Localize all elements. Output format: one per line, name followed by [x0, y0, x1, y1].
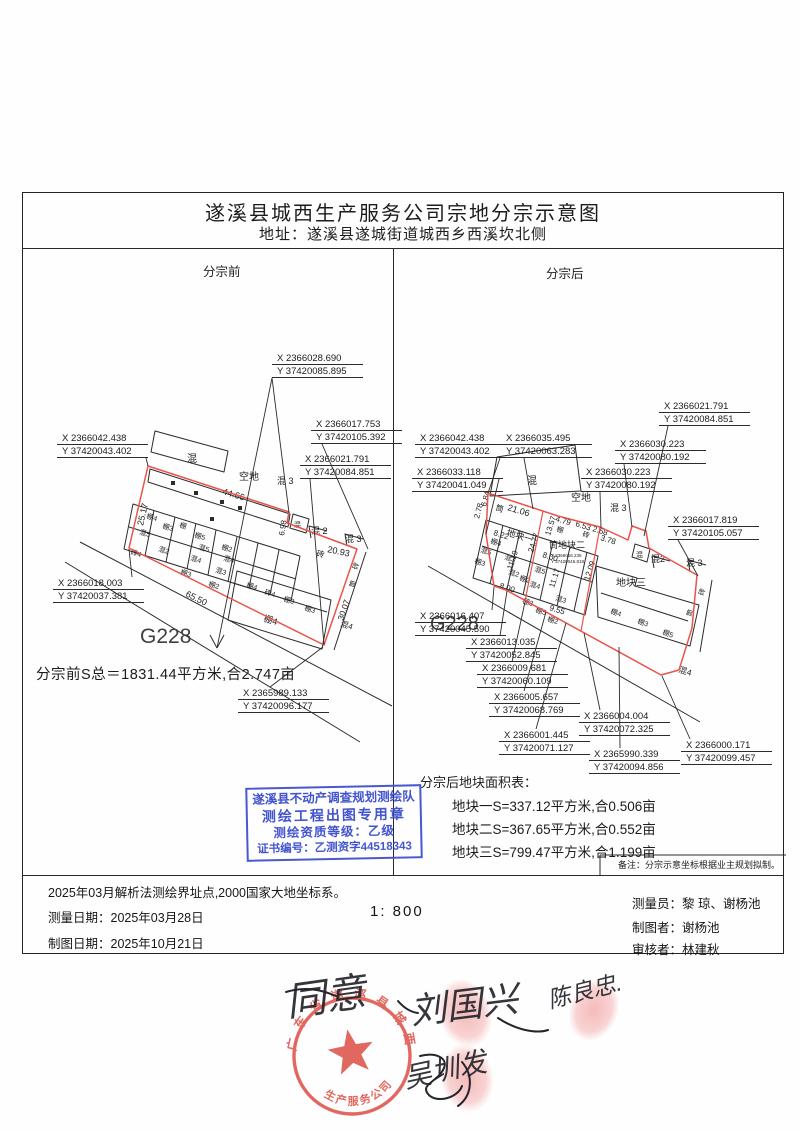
diagram-label: 混 3	[345, 534, 362, 544]
diagram-label: 棚3	[282, 594, 295, 606]
diagram-label: 65.50	[184, 589, 209, 608]
signature-area: 广东省遂溪县城西 生产服务公司 同意 刘国兴 陈良忠. 吴圳发	[0, 950, 800, 1131]
document-title: 遂溪县城西生产服务公司宗地分宗示意图	[22, 197, 784, 226]
survey-method: 2025年03月解析法测绘界址点,2000国家大地坐标系。	[48, 882, 346, 901]
diagram-line	[428, 566, 700, 722]
diagram-line	[129, 527, 296, 579]
diagram-label: 棚5	[193, 530, 206, 542]
leader-line	[310, 479, 324, 645]
building-outline	[228, 571, 331, 649]
coordinate-x-value: X 2366000.171	[686, 740, 750, 751]
coordinate-y-value: Y 37420080.192	[620, 452, 690, 463]
leader-line	[488, 458, 500, 493]
building-outline	[151, 431, 228, 472]
diagram-label: 地块三	[616, 576, 646, 589]
diagram-label: 混2	[157, 544, 170, 556]
coordinate-y-value: Y 37420063.283	[506, 446, 576, 457]
diagram-line	[601, 593, 688, 621]
document-address: 地址：遂溪县遂城街道城西乡西溪坎北侧	[22, 223, 784, 244]
diagram-label: 筒	[494, 502, 505, 514]
coordinate-x-value: X 2366004.004	[584, 711, 648, 722]
area-table-title: 分宗后地块面积表：	[420, 772, 537, 791]
leader-line	[600, 492, 601, 528]
coordinate-y-value: Y 37420084.851	[305, 467, 375, 478]
area-table-row: 地块一S=337.12平方米,合0.506亩	[452, 795, 656, 815]
coordinate-x-value: X 2366009.681	[482, 663, 546, 674]
surveyor-stamp: 遂溪县不动产调查规划测绘队 测绘工程出图专用章 测绘资质等级：乙级 证书编号：乙…	[245, 784, 423, 861]
diagram-label: 13.57	[543, 514, 558, 536]
leader-line	[272, 378, 289, 513]
coordinate-y-value: Y 37420071.127	[504, 743, 574, 754]
diagram-label: 棚4	[609, 606, 622, 618]
drafter-name: 制图者：谢杨池	[632, 917, 720, 936]
diagram-label: 21.06	[506, 502, 530, 518]
diagram-label: 棚3	[303, 603, 316, 615]
leader-line	[146, 458, 148, 466]
area-summary-before: 分宗前S总＝1831.44平方米,合2.747亩	[36, 663, 295, 684]
diagram-label: 2.78	[472, 502, 485, 520]
map-scale: 1: 800	[370, 903, 424, 920]
coordinate-y-value: Y 37420094.856	[594, 762, 664, 773]
diagram-label: 11.17	[547, 567, 562, 589]
diagram-label: 砖	[696, 587, 707, 597]
coordinate-y-value: Y 37420084.851	[664, 414, 734, 425]
diagram-label: 混	[187, 453, 197, 465]
coordinate-y-value: Y 37420099.457	[686, 753, 756, 764]
seal-star	[325, 1025, 377, 1076]
diagram-label: 混 3	[610, 503, 627, 513]
area-table-row: 地块二S=367.65平方米,合0.552亩	[452, 818, 656, 838]
coordinate-x-value: X 2366042.438	[62, 433, 126, 444]
diagram-label: 混4	[528, 579, 541, 591]
pillar-square	[171, 481, 175, 485]
coordinate-y-value: Y 37420080.192	[586, 480, 656, 491]
coordinate-x-value: X 2366042.438	[420, 433, 484, 444]
coordinate-y-value: Y 37420037.381	[58, 591, 128, 602]
diagram-label: 棚4	[262, 612, 279, 627]
building-outline	[148, 469, 290, 527]
pillar-square	[220, 500, 224, 504]
coordinate-y-value: Y 37420085.895	[277, 366, 347, 377]
coordinate-x-value: X 2366013.035	[471, 637, 535, 648]
coordinate-y-value: Y 37420060.109	[482, 676, 552, 687]
coordinate-y-value: Y 37420096.177	[243, 701, 313, 712]
diagram-label: 棚3	[636, 616, 649, 628]
diagram-label: 棚2	[207, 579, 220, 591]
leader-line	[217, 378, 272, 648]
coordinate-x-value: X 2366018.003	[58, 578, 122, 589]
coordinate-y-value: Y 37420045.590	[420, 624, 490, 635]
coordinate-x-value: X 2366030.223	[620, 439, 684, 450]
approval-text: 同意	[283, 970, 372, 1025]
coordinate-x-value: X 2365990.339	[594, 749, 658, 760]
coordinate-y-value: Y 37420105.057	[673, 528, 743, 539]
diagram-label: 砖4	[263, 587, 276, 599]
leader-line	[584, 633, 600, 710]
seal-bottom-text: 生产服务公司	[320, 1075, 398, 1114]
building-outline	[596, 566, 699, 646]
scanned-document-page: 遂溪县城西生产服务公司宗地分宗示意图 地址：遂溪县遂城街道城西乡西溪坎北侧 分宗…	[0, 0, 800, 1131]
coordinate-x-value: X 2366021.791	[305, 454, 369, 465]
cadastral-drawing: 混混空地混 3混 2混 3砖20.9344.6625.1765.506.9830…	[22, 248, 786, 875]
pillar-square	[194, 491, 198, 495]
stamp-line: 证书编号：乙测资字44518343	[251, 839, 417, 857]
coordinate-x-value: X 2366028.690	[277, 353, 341, 364]
diagram-line	[270, 550, 279, 595]
diagram-label: 30.07	[335, 598, 351, 622]
diagram-label: 空地	[239, 470, 259, 483]
diagram-label: 混4	[339, 619, 354, 631]
diagram-label: 筒地块二	[549, 539, 585, 550]
diagram-line	[210, 635, 217, 648]
diagram-line	[249, 543, 258, 588]
diagram-label: 混	[636, 550, 643, 559]
diagram-label: 棚	[178, 520, 187, 531]
survey-date: 测量日期：2025年03月28日	[48, 907, 204, 926]
coordinate-x-value: X 2366035.495	[506, 433, 570, 444]
coordinate-x-value: X 2366001.445	[504, 730, 568, 741]
coordinate-x-value: X 2366021.791	[664, 401, 728, 412]
diagram-label: 混3	[214, 565, 227, 577]
remark-note: 备注：分宗示意坐标根据业主规划拟制。	[618, 858, 780, 871]
coordinate-y-value: Y 37420068.769	[494, 705, 564, 716]
diagram-label: 棚3	[179, 567, 192, 579]
coordinate-y-value: Y 37420043.402	[62, 446, 132, 457]
diagram-line	[208, 530, 216, 575]
coordinate-y-value: Y 37420072.325	[584, 724, 654, 735]
leader-line	[492, 587, 494, 610]
coordinate-y-value: Y 37420041.049	[417, 480, 487, 491]
diagram-label: 3.78	[599, 533, 617, 546]
leader-line	[662, 676, 690, 739]
coordinate-x-value: X 2365989.133	[243, 688, 307, 699]
surveyor-name: 测量员：黎 琼、谢杨池	[632, 893, 760, 912]
diagram-label: 20.93	[327, 544, 351, 558]
diagram-label: 混4	[189, 553, 202, 565]
diagram-label: 混5	[197, 542, 210, 554]
coordinate-x-value: X 2366017.819	[673, 515, 737, 526]
coordinate-y-value: Y 37420052.845	[471, 650, 541, 661]
leader-line	[500, 591, 507, 636]
coordinate-x-value: X 2366030.223	[586, 467, 650, 478]
diagram-label: 棚	[555, 524, 564, 535]
diagram-label: 混3	[554, 593, 567, 605]
diagram-label: 混5	[138, 527, 151, 539]
coordinate-x-value: X 2366033.118	[417, 467, 481, 478]
diagram-label: 棚4	[145, 511, 158, 523]
diagram-label: G228	[140, 625, 191, 648]
diagram-label: 空地	[571, 491, 591, 504]
info-table-border	[22, 875, 783, 876]
coordinate-y-value: Y 37420043.402	[420, 446, 490, 457]
diagram-label: 棚2	[220, 542, 233, 554]
diagram-line	[482, 546, 592, 582]
coordinate-y-value: Y 37420105.392	[316, 432, 386, 443]
pillar-square	[238, 506, 242, 510]
coordinate-x-value: X 2366005.657	[494, 692, 558, 703]
coordinate-x-value: X 2366017.753	[316, 419, 380, 430]
pillar-square	[210, 517, 214, 521]
coordinate-x-value: X 2366016.407	[420, 611, 484, 622]
